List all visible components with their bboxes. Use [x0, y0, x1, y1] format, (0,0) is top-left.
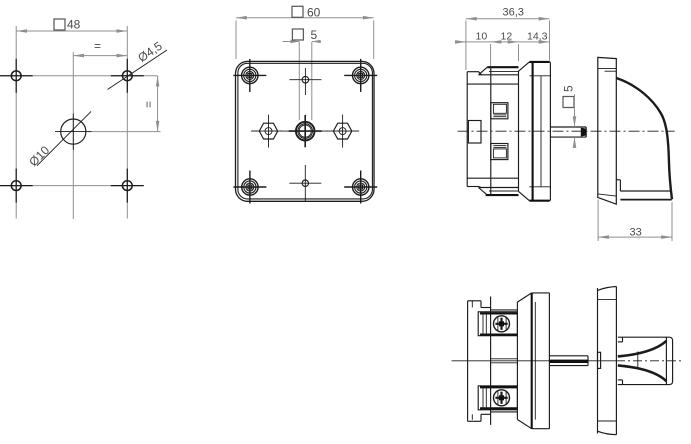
svg-text:=: = — [94, 39, 101, 53]
svg-text:5: 5 — [311, 28, 318, 42]
svg-text:5: 5 — [561, 85, 575, 92]
svg-text:48: 48 — [67, 18, 81, 32]
svg-text:33: 33 — [630, 227, 642, 239]
svg-text:12: 12 — [501, 31, 513, 43]
svg-text:36,3: 36,3 — [503, 7, 524, 19]
svg-text:14,3: 14,3 — [527, 31, 548, 43]
svg-text:60: 60 — [307, 6, 321, 20]
svg-text:10: 10 — [476, 31, 488, 43]
svg-text:=: = — [142, 101, 156, 108]
